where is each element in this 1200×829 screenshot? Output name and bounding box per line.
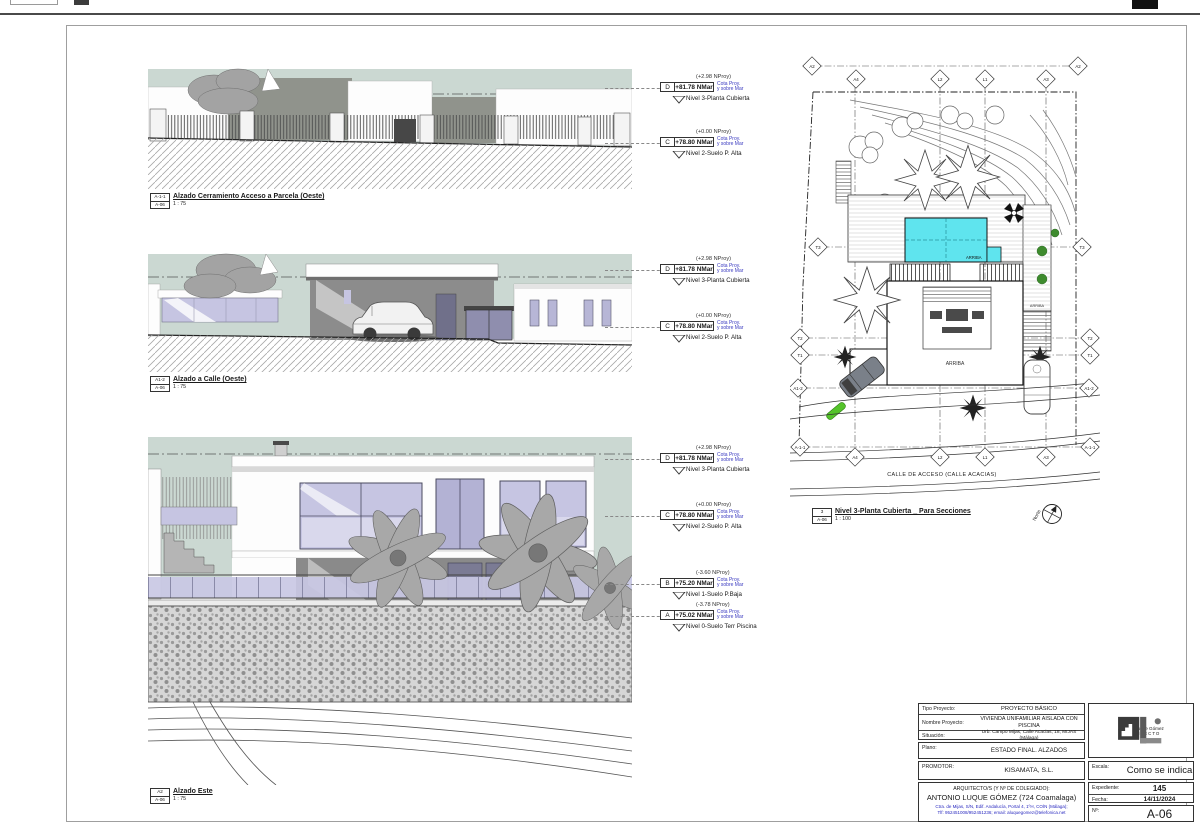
svg-text:A1-2: A1-2 bbox=[1084, 386, 1094, 391]
sheet-number: A-06 bbox=[1126, 807, 1193, 821]
svg-text:L1: L1 bbox=[983, 455, 988, 460]
pdf-page: A-1-1A-06 Alzado Cerramiento Acceso a Pa… bbox=[0, 0, 1200, 829]
numero-label: Nº: bbox=[1089, 806, 1126, 814]
svg-text:A4: A4 bbox=[852, 455, 858, 460]
arquitecto-label: ARQUITECTO/S (Y Nº DE COLEGIADO): bbox=[919, 786, 1084, 792]
arquitecto-value: ANTONIO LUQUE GÓMEZ (724 Coamalaga) bbox=[919, 793, 1084, 802]
svg-text:T1: T1 bbox=[797, 353, 803, 358]
door bbox=[436, 294, 456, 340]
stone-retaining-wall bbox=[148, 606, 632, 702]
elevation-street-drawing bbox=[148, 248, 632, 375]
spa bbox=[987, 247, 1001, 262]
level-marker-a: (-3.78 NProy) A+75.02 NMarCota Proy.y so… bbox=[660, 603, 790, 630]
svg-text:T3: T3 bbox=[1079, 245, 1085, 250]
roof-plan-drawing: ARRIBA ARRIBA ARRIBA bbox=[790, 55, 1100, 535]
access-gate bbox=[394, 119, 416, 142]
tipo-proyecto-value: PROYECTO BÁSICO bbox=[974, 705, 1084, 714]
view-label-1: A-1-1A-06 Alzado Cerramiento Acceso a Pa… bbox=[150, 193, 324, 209]
svg-text:A1-2: A1-2 bbox=[793, 386, 803, 391]
level-flag-icon bbox=[672, 335, 686, 343]
svg-text:T2: T2 bbox=[1087, 336, 1093, 341]
view-scale: 1 : 75 bbox=[173, 384, 247, 390]
promotor-label: PROMOTOR: bbox=[919, 762, 974, 770]
situacion-label: Situación: bbox=[919, 733, 974, 739]
level-flag-icon bbox=[672, 624, 686, 632]
view-scale: 1 : 75 bbox=[173, 796, 213, 802]
level-marker-c: (+0.00 NProy) C+78.80 NMarCota Proy.y so… bbox=[660, 130, 790, 157]
svg-text:A3: A3 bbox=[1043, 77, 1049, 82]
svg-text:T1: T1 bbox=[1087, 353, 1093, 358]
nombre-proyecto-value: VIVIENDA UNIFAMILIAR AISLADA CON PISCINA bbox=[974, 715, 1084, 729]
view-scale: 1 : 100 bbox=[835, 516, 971, 522]
viewer-chrome-fragment bbox=[10, 0, 58, 5]
pergola-slats bbox=[890, 264, 950, 281]
escala-label: Escala: bbox=[1089, 762, 1126, 770]
architect-logo-icon bbox=[1116, 716, 1166, 746]
viewer-chrome-fragment bbox=[1132, 0, 1158, 9]
level-marker-d: (+2.98 NProy) D+81.78 NMarCota Proy.y so… bbox=[660, 446, 790, 473]
north-arrow: Norte bbox=[1032, 501, 1065, 527]
svg-text:T2: T2 bbox=[797, 336, 803, 341]
nombre-proyecto-label: Nombre Proyecto: bbox=[919, 720, 974, 726]
view-title: Alzado a Calle (Oeste) bbox=[173, 376, 247, 383]
svg-text:L2: L2 bbox=[938, 77, 943, 82]
level-marker-b: (-3.60 NProy) B+75.20 NMarCota Proy.y so… bbox=[660, 571, 790, 598]
pergola-slats bbox=[980, 264, 1023, 281]
escala-value: Como se indica bbox=[1126, 765, 1193, 776]
svg-text:L1: L1 bbox=[983, 77, 988, 82]
arquitecto-address-2: Tlf: 952451008/952451236; email: aluqueg… bbox=[919, 810, 1084, 816]
fecha-label: Fecha: bbox=[1089, 797, 1126, 803]
level-flag-icon bbox=[672, 467, 686, 475]
green-object bbox=[825, 401, 846, 421]
svg-text:A2: A2 bbox=[809, 64, 815, 69]
svg-text:A-1-1: A-1-1 bbox=[1085, 445, 1096, 450]
slat-fence bbox=[158, 115, 618, 139]
viewer-chrome-fragment bbox=[74, 0, 89, 5]
arriba-label: ARRIBA bbox=[966, 255, 982, 260]
level-flag-icon bbox=[672, 151, 686, 159]
north-label: Norte bbox=[1032, 509, 1043, 522]
expediente-label: Expediente: bbox=[1089, 785, 1126, 791]
svg-text:A2: A2 bbox=[1075, 64, 1081, 69]
level-marker-c: (+0.00 NProy) C+78.80 NMarCota Proy.y so… bbox=[660, 503, 790, 530]
situacion-value: Urb. Campo Mijas, Calle Acacias, 18, MIJ… bbox=[974, 729, 1084, 742]
view-label-2: A1-2A-06 Alzado a Calle (Oeste)1 : 75 bbox=[150, 376, 247, 392]
fecha-value: 14/11/2024 bbox=[1126, 795, 1193, 804]
level-flag-icon bbox=[672, 524, 686, 532]
plan-label: 3A-06 Nivel 3-Planta Cubierta _ Para Sec… bbox=[812, 508, 971, 524]
level-marker-d: (+2.98 NProy) D+81.78 NMarCota Proy.y so… bbox=[660, 257, 790, 284]
svg-text:T3: T3 bbox=[815, 245, 821, 250]
svg-text:A3: A3 bbox=[1043, 455, 1049, 460]
plano-value: ESTADO FINAL. ALZADOS bbox=[974, 746, 1084, 755]
view-title: Alzado Cerramiento Acceso a Parcela (Oes… bbox=[173, 193, 324, 200]
svg-text:A4: A4 bbox=[853, 77, 859, 82]
terrain-contours bbox=[148, 702, 632, 785]
level-marker-d: (+2.98 NProy) D+81.78 NMarCota Proy.y so… bbox=[660, 75, 790, 102]
tipo-proyecto-label: Tipo Proyecto: bbox=[919, 706, 974, 712]
street-curves bbox=[790, 383, 1100, 496]
plano-label: Plano: bbox=[919, 743, 974, 751]
promotor-value: KISAMATA, S.L. bbox=[974, 766, 1084, 776]
expediente-value: 145 bbox=[1126, 783, 1193, 794]
view-title: Alzado Este bbox=[173, 788, 213, 795]
svg-text:A-1-1: A-1-1 bbox=[795, 445, 806, 450]
street-label: CALLE DE ACCESO (CALLE ACACIAS) bbox=[887, 472, 996, 478]
arriba-label: ARRIBA bbox=[946, 361, 965, 367]
arquitecto-address-1: Ctra. de Mijas, S/N, Edif. Andalucía, Po… bbox=[919, 804, 1084, 810]
elevation-west-fence-drawing bbox=[148, 63, 632, 193]
page-divider bbox=[0, 13, 1200, 15]
level-marker-c: (+0.00 NProy) C+78.80 NMarCota Proy.y so… bbox=[660, 314, 790, 341]
elevation-east-drawing bbox=[148, 433, 632, 785]
title-block: Tipo Proyecto:PROYECTO BÁSICO Nombre Pro… bbox=[918, 703, 1194, 822]
view-scale: 1 : 75 bbox=[173, 201, 324, 207]
roof-stairs bbox=[1023, 311, 1051, 351]
level-flag-icon bbox=[672, 96, 686, 104]
level-flag-icon bbox=[672, 278, 686, 286]
view-title: Nivel 3-Planta Cubierta _ Para Secciones bbox=[835, 508, 971, 515]
level-flag-icon bbox=[672, 592, 686, 600]
arriba-label: ARRIBA bbox=[1030, 304, 1045, 308]
view-label-3: A2A-06 Alzado Este1 : 75 bbox=[150, 788, 213, 804]
svg-text:L2: L2 bbox=[938, 455, 943, 460]
